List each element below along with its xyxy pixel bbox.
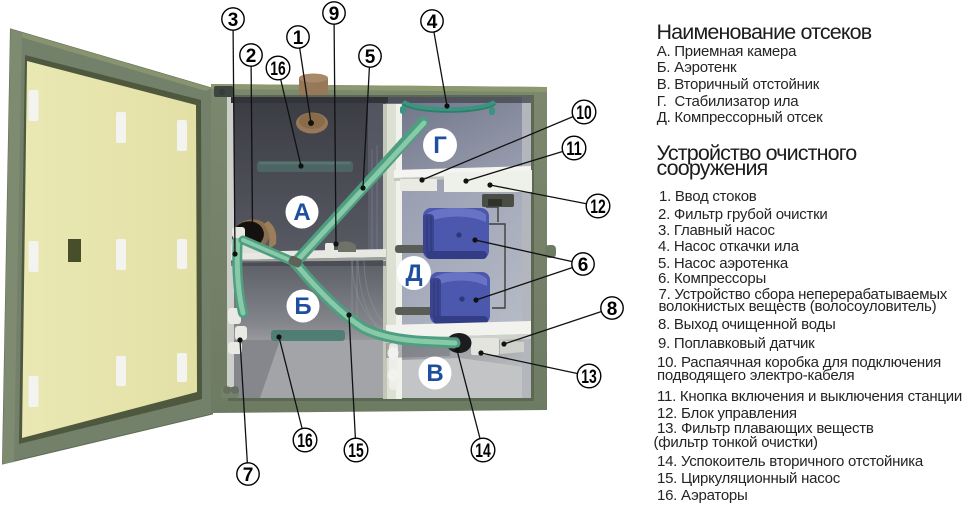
svg-text:14: 14 [475, 441, 491, 462]
svg-text:3: 3 [228, 10, 239, 31]
svg-text:4: 4 [427, 12, 438, 33]
svg-text:16: 16 [270, 59, 286, 80]
svg-text:10: 10 [576, 103, 592, 124]
svg-text:13: 13 [581, 367, 597, 388]
svg-text:Г: Г [433, 132, 447, 159]
svg-text:Д: Д [405, 260, 422, 287]
svg-text:2: 2 [246, 46, 257, 67]
svg-text:11: 11 [566, 139, 582, 160]
svg-text:12: 12 [590, 197, 606, 218]
svg-text:1: 1 [293, 28, 304, 49]
svg-text:9: 9 [329, 4, 340, 25]
svg-text:15: 15 [348, 441, 364, 462]
svg-text:7: 7 [243, 465, 254, 486]
svg-text:В: В [426, 360, 443, 387]
svg-text:16: 16 [297, 431, 313, 452]
svg-text:А: А [293, 199, 310, 226]
svg-text:6: 6 [578, 255, 589, 276]
svg-text:5: 5 [365, 47, 376, 68]
svg-text:8: 8 [607, 299, 618, 320]
svg-text:Б: Б [294, 293, 311, 320]
